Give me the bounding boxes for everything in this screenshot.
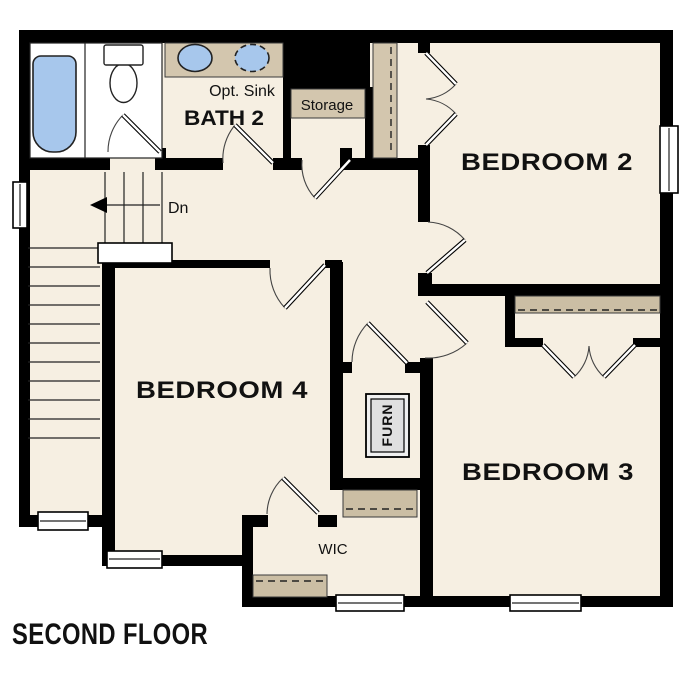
sink-icon	[178, 45, 212, 72]
stair-landing	[98, 243, 172, 263]
furnace-unit: FURN	[366, 394, 409, 457]
furnace-label: FURN	[379, 404, 395, 447]
toilet-bowl-icon	[110, 64, 137, 103]
opt-sink-label: Opt. Sink	[209, 83, 276, 100]
toilet-tank-icon	[104, 45, 143, 65]
storage-label: Storage	[301, 97, 354, 114]
floor-plan: FURN Opt. Sink BATH 2 Storage BEDROOM 2 …	[0, 0, 687, 687]
bath2-label: BATH 2	[184, 107, 264, 130]
stairs-dn-label: Dn	[168, 200, 188, 217]
page-title: SECOND FLOOR	[12, 618, 208, 651]
bathtub-icon	[33, 56, 76, 152]
wic-label: WIC	[318, 541, 347, 558]
bedroom3-label: BEDROOM 3	[462, 459, 634, 486]
bedroom2-label: BEDROOM 2	[461, 149, 633, 176]
wic-shelf-bottom	[253, 575, 327, 597]
bedroom2-closet-shelf	[373, 43, 397, 158]
optional-sink-icon	[235, 45, 269, 72]
wic-shelf-top	[343, 490, 417, 517]
bedroom4-label: BEDROOM 4	[136, 377, 308, 404]
